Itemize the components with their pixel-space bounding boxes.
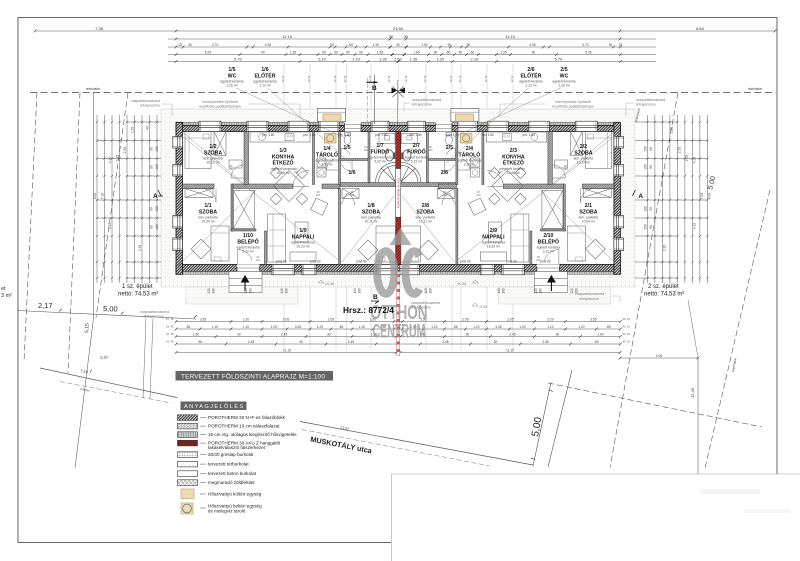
svg-text:B: B <box>373 294 378 301</box>
svg-text:15: 15 <box>166 325 169 329</box>
svg-text:180: 180 <box>285 288 289 294</box>
svg-text:12 12: 12 12 <box>404 75 408 82</box>
svg-text:pm: 1.80: pm: 1.80 <box>375 133 388 137</box>
svg-text:10,12 m²: 10,12 m² <box>206 161 220 165</box>
svg-text:7.10: 7.10 <box>101 193 105 200</box>
svg-text:90: 90 <box>532 50 536 54</box>
svg-text:12 12: 12 12 <box>423 75 427 82</box>
svg-text:11.15: 11.15 <box>283 348 291 352</box>
svg-text:10,34 m²: 10,34 m² <box>201 220 215 224</box>
svg-text:30: 30 <box>494 340 498 344</box>
svg-text:90: 90 <box>150 225 154 229</box>
svg-text:210: 210 <box>256 259 261 262</box>
svg-text:tervezett térburkolat: tervezett térburkolat <box>208 462 249 467</box>
svg-text:pmd 60: pmd 60 <box>356 260 367 264</box>
svg-text:1/4: 1/4 <box>323 146 330 152</box>
svg-text:csapadékcsatorna: csapadékcsatorna <box>412 98 441 102</box>
svg-text:60: 60 <box>322 50 326 54</box>
svg-text:90: 90 <box>261 50 265 54</box>
svg-text:90: 90 <box>150 207 154 211</box>
svg-text:.85: .85 <box>186 325 191 329</box>
svg-text:2.05: 2.05 <box>283 317 290 321</box>
svg-text:CENTRUM: CENTRUM <box>373 322 426 343</box>
svg-text:POROTHERM 30 AKU: POROTHERM 30 AKU <box>396 178 400 209</box>
svg-text:10,11 m²: 10,11 m² <box>364 220 378 224</box>
svg-text:1/1: 1/1 <box>204 203 211 209</box>
svg-text:1.35: 1.35 <box>290 50 297 54</box>
svg-text:2/5: 2/5 <box>446 145 453 151</box>
svg-text:POROTHERM 30 N+F-es falazóblo: POROTHERM 30 N+F-es falazóblokk <box>208 415 286 420</box>
svg-text:1 sz. épület: 1 sz. épület <box>122 284 153 290</box>
svg-text:90: 90 <box>649 207 653 211</box>
svg-text:POROTHERM 10 cm válaszfalazat: POROTHERM 10 cm válaszfalazat <box>208 424 280 429</box>
svg-text:ANYAGJELÖLÉS: ANYAGJELÖLÉS <box>184 403 245 410</box>
svg-text:2/1: 2/1 <box>585 203 592 209</box>
svg-text:210: 210 <box>294 171 299 174</box>
svg-text:2.10: 2.10 <box>471 56 480 61</box>
svg-text:2.35: 2.35 <box>138 245 142 252</box>
svg-text:nettó: 74,53 m²: nettó: 74,53 m² <box>644 292 684 298</box>
svg-text:15: 15 <box>166 332 169 336</box>
svg-text:12 12: 12 12 <box>510 75 514 82</box>
svg-text:3.05: 3.05 <box>495 325 502 329</box>
svg-text:8.00: 8.00 <box>707 193 711 200</box>
svg-text:2.20: 2.20 <box>243 317 250 321</box>
svg-text:2/9: 2/9 <box>490 228 497 234</box>
svg-text:1.25: 1.25 <box>670 127 674 134</box>
svg-text:1.20: 1.20 <box>317 325 324 329</box>
svg-text:ELŐTÉR: ELŐTÉR <box>254 72 275 80</box>
svg-text:csapadékcsatorna: csapadékcsatorna <box>140 310 169 314</box>
svg-text:2.45: 2.45 <box>442 340 449 344</box>
svg-text:45: 45 <box>171 332 174 336</box>
svg-text:45: 45 <box>623 332 626 336</box>
svg-text:30: 30 <box>299 340 303 344</box>
svg-text:1.65: 1.65 <box>377 50 384 54</box>
svg-text:15: 15 <box>627 332 630 336</box>
svg-text:2 sz. épület: 2 sz. épület <box>648 284 679 290</box>
svg-text:23.50: 23.50 <box>393 26 404 31</box>
svg-text:30: 30 <box>237 332 241 336</box>
svg-text:2/2: 2/2 <box>580 144 587 150</box>
svg-text:3.70: 3.70 <box>212 43 219 47</box>
svg-text:210: 210 <box>563 168 568 171</box>
svg-text:8.84: 8.84 <box>696 26 705 31</box>
svg-text:5.25: 5.25 <box>585 50 592 54</box>
svg-text:1/2: 1/2 <box>209 144 216 150</box>
svg-text:1.60: 1.60 <box>193 332 200 336</box>
svg-text:7.03: 7.03 <box>700 193 704 200</box>
svg-text:180: 180 <box>249 288 253 294</box>
svg-text:ÉTKEZŐ: ÉTKEZŐ <box>272 159 293 167</box>
svg-text:1/8: 1/8 <box>367 203 374 209</box>
svg-text:120: 120 <box>497 288 501 294</box>
svg-text:pmd 60: pmd 60 <box>540 260 551 264</box>
svg-text:A: A <box>638 193 643 200</box>
svg-text:4.10: 4.10 <box>692 223 696 230</box>
svg-text:telekhatár: telekhatár <box>748 87 763 91</box>
svg-text:60: 60 <box>334 50 338 54</box>
svg-text:210: 210 <box>442 194 447 197</box>
svg-text:15 cm vtg. utólagos kiegészítő: 15 cm vtg. utólagos kiegészítő hőszigete… <box>208 432 297 437</box>
svg-text:1.20: 1.20 <box>437 56 446 61</box>
svg-text:1,26 m²: 1,26 m² <box>558 84 570 88</box>
svg-text:mennyezetbe építhető: mennyezetbe építhető <box>555 100 591 104</box>
svg-text:2/4: 2/4 <box>466 146 473 152</box>
svg-text:2.45: 2.45 <box>248 340 255 344</box>
svg-text:1.20: 1.20 <box>212 325 219 329</box>
svg-text:60: 60 <box>447 50 451 54</box>
svg-text:10,12 m²: 10,12 m² <box>577 161 591 165</box>
svg-text:30: 30 <box>188 43 192 47</box>
svg-text:210: 210 <box>498 171 503 174</box>
svg-text:60: 60 <box>459 50 463 54</box>
svg-text:5.25: 5.25 <box>205 50 212 54</box>
svg-text:5,00: 5,00 <box>103 304 118 314</box>
svg-text:4,39: 4,39 <box>100 354 109 360</box>
svg-text:11.15: 11.15 <box>505 34 515 39</box>
svg-text:90: 90 <box>434 50 438 54</box>
svg-text:12 12: 12 12 <box>307 75 311 82</box>
svg-text:.80: .80 <box>198 340 203 344</box>
svg-text:2/3: 2/3 <box>510 148 517 154</box>
svg-text:150: 150 <box>643 224 647 230</box>
svg-text:2.05: 2.05 <box>328 317 335 321</box>
svg-text:180: 180 <box>429 288 433 294</box>
svg-text:90: 90 <box>150 165 154 169</box>
svg-text:1/6: 1/6 <box>348 170 355 176</box>
svg-text:TÁROLÓ: TÁROLÓ <box>458 151 480 159</box>
svg-text:120: 120 <box>244 288 248 294</box>
svg-text:4.10: 4.10 <box>692 157 696 164</box>
svg-text:12 12: 12 12 <box>387 75 391 82</box>
svg-text:90: 90 <box>330 43 334 47</box>
svg-text:BELÉPŐ: BELÉPŐ <box>538 238 559 246</box>
svg-text:120: 120 <box>353 288 357 294</box>
svg-text:180: 180 <box>539 288 543 294</box>
svg-text:csapadékcsatorna: csapadékcsatorna <box>575 292 604 296</box>
svg-text:2/10: 2/10 <box>543 233 553 239</box>
svg-text:megmaradó zöldfelület: megmaradó zöldfelület <box>208 480 255 485</box>
svg-text:12 12: 12 12 <box>484 75 488 82</box>
svg-text:8.00: 8.00 <box>93 193 97 200</box>
svg-text:lefolyócsöve: lefolyócsöve <box>636 103 656 107</box>
svg-text:3.05: 3.05 <box>295 325 302 329</box>
svg-text:12 12: 12 12 <box>449 75 453 82</box>
svg-text:1.35: 1.35 <box>410 56 419 61</box>
svg-text:120: 120 <box>424 288 428 294</box>
svg-text:±0.30: ±0.30 <box>457 282 466 286</box>
svg-text:1,12 m²: 1,12 m² <box>259 84 271 88</box>
svg-text:pmd 60: pmd 60 <box>310 260 321 264</box>
svg-text:1/3: 1/3 <box>279 148 286 154</box>
svg-text:csapadékcsatorna: csapadékcsatorna <box>636 98 665 102</box>
svg-text:Hőszivattyú kültéri egység: Hőszivattyú kültéri egység <box>208 492 262 497</box>
svg-text:15: 15 <box>166 340 169 344</box>
svg-text:180: 180 <box>502 288 506 294</box>
svg-text:45: 45 <box>623 340 626 344</box>
svg-text:180: 180 <box>358 288 362 294</box>
svg-text:lakáselválasztó falszerkezet: lakáselválasztó falszerkezet <box>208 445 266 450</box>
svg-text:tervezett beton burkolat: tervezett beton burkolat <box>208 471 257 476</box>
svg-text:-0.05: -0.05 <box>479 305 487 309</box>
svg-text:12 12: 12 12 <box>368 75 372 82</box>
svg-text:1.35: 1.35 <box>500 50 507 54</box>
svg-text:±0.30: ±0.30 <box>325 282 334 286</box>
svg-text:90: 90 <box>359 50 363 54</box>
svg-text:90: 90 <box>649 165 653 169</box>
svg-text:3,12 m²: 3,12 m² <box>242 250 254 254</box>
svg-text:4.10: 4.10 <box>108 157 112 164</box>
svg-text:5.70: 5.70 <box>555 56 564 61</box>
svg-text:pm: 1.80: pm: 1.80 <box>522 133 535 137</box>
svg-text:lenyitható padlásfeljáróján: lenyitható padlásfeljáróján <box>552 105 594 109</box>
svg-text:5,22 m²: 5,22 m² <box>374 160 386 164</box>
svg-text:TÁROLÓ: TÁROLÓ <box>316 151 338 159</box>
svg-text:lenyitható padlásfeljáróján: lenyitható padlásfeljáróján <box>199 105 241 109</box>
svg-text:15: 15 <box>619 43 623 47</box>
svg-text:1/7: 1/7 <box>376 143 383 149</box>
svg-text:pm: 1.80: pm: 1.80 <box>446 133 459 137</box>
svg-text:2/6: 2/6 <box>441 170 448 176</box>
svg-text:180: 180 <box>212 288 216 294</box>
svg-text:lefolyócsöve: lefolyócsöve <box>140 104 160 108</box>
svg-text:1.20: 1.20 <box>431 325 438 329</box>
svg-text:150: 150 <box>155 224 159 230</box>
svg-text:45: 45 <box>171 340 174 344</box>
svg-text:pm: 1.80: pm: 1.80 <box>409 133 422 137</box>
svg-text:90: 90 <box>467 43 471 47</box>
svg-text:150: 150 <box>643 206 647 212</box>
svg-text:és melegvíz tároló: és melegvíz tároló <box>208 509 246 514</box>
svg-text:3,12 m²: 3,12 m² <box>543 250 555 254</box>
svg-text:210: 210 <box>350 194 355 197</box>
svg-text:1.20: 1.20 <box>352 56 361 61</box>
svg-text:60: 60 <box>448 43 452 47</box>
svg-text:5.70: 5.70 <box>234 56 243 61</box>
svg-text:pmd 60: pmd 60 <box>506 260 517 264</box>
svg-text:1/6: 1/6 <box>261 67 268 73</box>
svg-text:1.00: 1.00 <box>519 325 526 329</box>
svg-text:90: 90 <box>649 225 653 229</box>
svg-text:10,96 m²: 10,96 m² <box>507 171 521 175</box>
svg-text:150: 150 <box>155 206 159 212</box>
svg-text:2.50: 2.50 <box>394 56 403 61</box>
svg-text:15: 15 <box>627 325 630 329</box>
svg-text:1.10: 1.10 <box>243 325 250 329</box>
svg-text:4.35: 4.35 <box>265 43 272 47</box>
svg-text:11.15: 11.15 <box>282 34 292 39</box>
svg-text:pmd 60: pmd 60 <box>460 260 471 264</box>
svg-text:150: 150 <box>155 146 159 152</box>
svg-text:2.10: 2.10 <box>318 56 327 61</box>
svg-text:15: 15 <box>627 317 630 321</box>
svg-text:1.20: 1.20 <box>359 325 366 329</box>
svg-text:210: 210 <box>476 194 481 197</box>
svg-text:12 12: 12 12 <box>458 75 462 82</box>
svg-text:pm: 1.80: pm: 1.80 <box>303 133 316 137</box>
svg-text:5,15: 5,15 <box>84 323 91 333</box>
svg-text:1,26 m²: 1,26 m² <box>226 84 238 88</box>
svg-text:3.55: 3.55 <box>200 317 207 321</box>
svg-text:.86: .86 <box>339 325 344 329</box>
svg-text:4.06: 4.06 <box>656 354 663 358</box>
svg-text:2/7: 2/7 <box>413 143 420 149</box>
svg-text:A: A <box>153 193 158 200</box>
svg-text:210: 210 <box>229 168 234 171</box>
svg-text:120: 120 <box>534 288 538 294</box>
svg-text:BELÉPŐ: BELÉPŐ <box>237 238 258 246</box>
svg-text:210: 210 <box>316 194 321 197</box>
svg-text:15: 15 <box>166 317 169 321</box>
svg-text:2.75: 2.75 <box>116 155 120 162</box>
svg-text:pm: 1.80: pm: 1.80 <box>338 133 351 137</box>
svg-text:1/9: 1/9 <box>299 228 306 234</box>
svg-text:19,23 m²: 19,23 m² <box>487 245 501 249</box>
svg-text:pm: 1.80: pm: 1.80 <box>481 133 494 137</box>
svg-text:30: 30 <box>396 43 400 47</box>
svg-text:7.38: 7.38 <box>95 26 104 31</box>
svg-text:90: 90 <box>150 147 154 151</box>
svg-text:10,11 m²: 10,11 m² <box>419 220 433 224</box>
svg-text:1.65: 1.65 <box>413 50 420 54</box>
svg-text:csapadékcsatorna: csapadékcsatorna <box>131 99 160 103</box>
svg-text:1.90: 1.90 <box>421 43 428 47</box>
svg-text:45: 45 <box>623 317 626 321</box>
svg-text:pm: 1.80: pm: 1.80 <box>262 133 275 137</box>
svg-text:2.45: 2.45 <box>509 332 516 336</box>
svg-text:1.60: 1.60 <box>597 332 604 336</box>
svg-text:30: 30 <box>466 332 470 336</box>
svg-text:45: 45 <box>171 325 174 329</box>
svg-text:15: 15 <box>627 340 630 344</box>
svg-text:150: 150 <box>643 164 647 170</box>
svg-text:2.45: 2.45 <box>281 332 288 336</box>
svg-text:1/5: 1/5 <box>343 145 350 151</box>
svg-text:2,17: 2,17 <box>38 301 53 310</box>
svg-text:lefolyócsöve: lefolyócsöve <box>579 297 599 301</box>
svg-text:30: 30 <box>389 34 394 39</box>
svg-text:12 12: 12 12 <box>333 75 337 82</box>
svg-text:12,49: 12,49 <box>690 387 695 398</box>
svg-text:210: 210 <box>428 149 433 152</box>
svg-text:3.55: 3.55 <box>590 317 597 321</box>
svg-text:45: 45 <box>146 126 150 130</box>
svg-text:4.10: 4.10 <box>108 223 112 230</box>
svg-text:19,23 m²: 19,23 m² <box>296 245 310 249</box>
svg-text:2.05: 2.05 <box>462 317 469 321</box>
svg-text:1.90: 1.90 <box>373 43 380 47</box>
svg-text:12 12: 12 12 <box>281 75 285 82</box>
svg-text:30: 30 <box>609 43 613 47</box>
svg-text:30: 30 <box>556 332 560 336</box>
svg-text:45: 45 <box>171 317 174 321</box>
svg-text:1.10: 1.10 <box>547 325 554 329</box>
svg-text:lefolyócsöve: lefolyócsöve <box>412 103 432 107</box>
svg-text:60: 60 <box>349 43 353 47</box>
svg-text:15: 15 <box>178 43 182 47</box>
svg-text:3,30 m²: 3,30 m² <box>464 163 476 167</box>
svg-text:2.35: 2.35 <box>662 245 666 252</box>
svg-text:1/10: 1/10 <box>243 233 253 239</box>
svg-text:nettó: 74,53 m²: nettó: 74,53 m² <box>118 292 158 298</box>
svg-text:4.35: 4.35 <box>529 43 536 47</box>
svg-text:90: 90 <box>649 147 653 151</box>
svg-text:telekhatár: telekhatár <box>86 87 101 91</box>
svg-text:2/6: 2/6 <box>527 67 534 73</box>
svg-text:1,12 m²: 1,12 m² <box>525 84 537 88</box>
svg-text:2.75: 2.75 <box>685 155 689 162</box>
svg-text:FÜRDŐ: FÜRDŐ <box>407 149 425 156</box>
svg-text:et: et <box>1 286 6 292</box>
svg-text:FÜRDŐ: FÜRDŐ <box>371 149 389 156</box>
svg-text:2/5: 2/5 <box>560 67 567 73</box>
svg-text:1.20: 1.20 <box>578 325 585 329</box>
svg-text:mennyezetbe építhető: mennyezetbe építhető <box>202 100 238 104</box>
svg-text:60: 60 <box>346 50 350 54</box>
svg-text:120: 120 <box>280 288 284 294</box>
svg-text:150: 150 <box>155 164 159 170</box>
svg-text:30/30 greslap burkolat: 30/30 greslap burkolat <box>208 452 254 457</box>
svg-text:2.05: 2.05 <box>507 317 514 321</box>
svg-text:11.15: 11.15 <box>506 348 514 352</box>
svg-text:3,30 m²: 3,30 m² <box>321 163 333 167</box>
svg-text:.86: .86 <box>453 325 458 329</box>
svg-text:2.20: 2.20 <box>547 317 554 321</box>
svg-text:2.35: 2.35 <box>123 147 127 154</box>
svg-text:1.00: 1.00 <box>271 325 278 329</box>
svg-text:.85: .85 <box>606 325 611 329</box>
svg-text:120: 120 <box>570 288 574 294</box>
svg-text:Hrsz.: 8772/4: Hrsz.: 8772/4 <box>343 305 394 315</box>
svg-text:45: 45 <box>623 325 626 329</box>
svg-text:10,96 m²: 10,96 m² <box>276 171 290 175</box>
svg-text:ELŐTÉR: ELŐTÉR <box>520 72 541 80</box>
svg-text:120: 120 <box>207 288 211 294</box>
svg-text:2.45: 2.45 <box>542 340 549 344</box>
svg-text:TERVEZETT FÖLDSZINTI ALAPRAJ: TERVEZETT FÖLDSZINTI ALAPRAJZ M=1:100 <box>181 372 325 380</box>
svg-text:1.20: 1.20 <box>473 325 480 329</box>
svg-text:3 m²: 3 m² <box>1 293 12 299</box>
svg-text:1/5: 1/5 <box>228 67 235 73</box>
svg-text:.80: .80 <box>594 340 599 344</box>
svg-text:5,22 m²: 5,22 m² <box>411 160 423 164</box>
svg-text:10,04 m²: 10,04 m² <box>582 220 596 224</box>
svg-text:60: 60 <box>471 50 475 54</box>
svg-text:210: 210 <box>364 149 369 152</box>
svg-text:30: 30 <box>327 332 331 336</box>
svg-text:2.35: 2.35 <box>677 147 681 154</box>
svg-text:2.45: 2.45 <box>348 340 355 344</box>
svg-text:2/8: 2/8 <box>422 203 429 209</box>
svg-text:pmd 60: pmd 60 <box>276 260 287 264</box>
svg-text:30: 30 <box>404 34 409 39</box>
svg-text:3.70: 3.70 <box>582 43 589 47</box>
svg-text:1.35: 1.35 <box>379 56 388 61</box>
svg-text:150: 150 <box>643 146 647 152</box>
svg-text:ÉTKEZŐ: ÉTKEZŐ <box>503 159 524 167</box>
svg-text:1.25: 1.25 <box>131 127 135 134</box>
svg-text:lefolyócsöve: lefolyócsöve <box>144 315 164 319</box>
